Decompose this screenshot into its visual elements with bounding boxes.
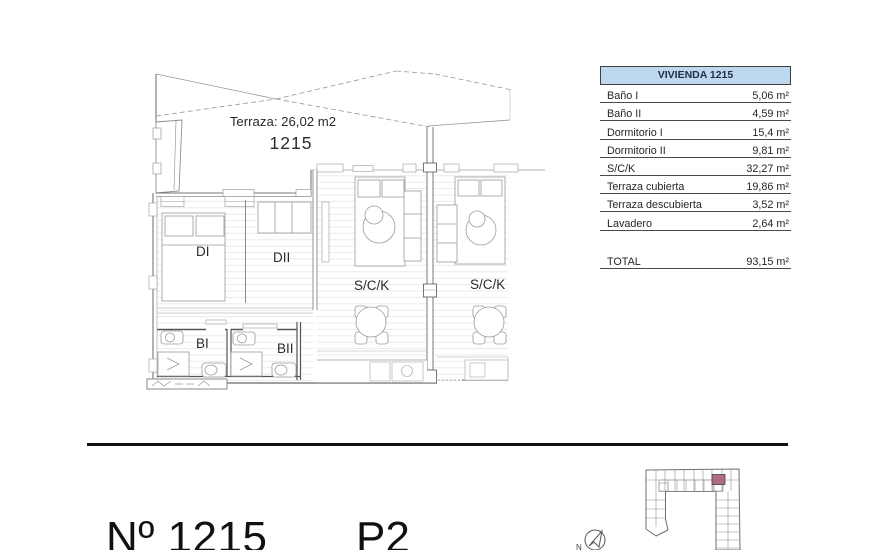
- floor-label: P2: [356, 513, 410, 550]
- room-label-bano2: BII: [277, 341, 294, 356]
- unit-title: Nº 1215: [106, 513, 267, 550]
- table-row: Dormitorio I 15,4 m²: [600, 121, 791, 139]
- table-total-row: TOTAL 93,15 m²: [600, 251, 791, 269]
- room-label-dormitorio1: DI: [196, 244, 210, 259]
- row-value: 9,81 m²: [752, 145, 791, 157]
- row-value: 5,06 m²: [752, 90, 791, 102]
- row-label: Dormitorio II: [600, 145, 666, 157]
- row-label: Terraza descubierta: [600, 199, 702, 211]
- north-compass-icon: N: [570, 522, 612, 550]
- total-value: 93,15 m²: [746, 256, 791, 268]
- table-row: Terraza cubierta 19,86 m²: [600, 176, 791, 194]
- row-label: Dormitorio I: [600, 127, 663, 139]
- unit-number-label: 1215: [270, 133, 313, 153]
- brochure-page: Terraza: 26,02 m2 1215 DI DII S/C/K S/C/…: [0, 0, 870, 550]
- row-value: 2,64 m²: [752, 218, 791, 230]
- total-label: TOTAL: [600, 256, 641, 268]
- floor-plan-drawing: Terraza: 26,02 m2 1215 DI DII S/C/K S/C/…: [140, 55, 570, 430]
- row-label: Lavadero: [600, 218, 652, 230]
- row-label: S/C/K: [600, 163, 635, 175]
- table-row: Dormitorio II 9,81 m²: [600, 140, 791, 158]
- row-value: 4,59 m²: [752, 108, 791, 120]
- lavadero-strip: [147, 379, 227, 389]
- terrace-label: Terraza: 26,02 m2: [230, 114, 336, 129]
- row-value: 15,4 m²: [752, 127, 791, 139]
- key-plan-highlight: [712, 475, 725, 485]
- room-label-dormitorio2: DII: [273, 250, 290, 265]
- row-value: 19,86 m²: [746, 181, 791, 193]
- table-row: Baño II 4,59 m²: [600, 103, 791, 121]
- table-row: Baño I 5,06 m²: [600, 85, 791, 103]
- row-label: Terraza cubierta: [600, 181, 684, 193]
- area-table: VIVIENDA 1215 Baño I 5,06 m² Baño II 4,5…: [600, 66, 791, 269]
- table-row: Lavadero 2,64 m²: [600, 212, 791, 230]
- row-value: 32,27 m²: [746, 163, 791, 175]
- room-label-bano1: BI: [196, 336, 209, 351]
- row-label: Baño II: [600, 108, 641, 120]
- room-label-salon: S/C/K: [354, 278, 389, 293]
- area-table-header: VIVIENDA 1215: [600, 66, 791, 85]
- table-row: Terraza descubierta 3,52 m²: [600, 194, 791, 212]
- building-key-plan: [633, 463, 747, 550]
- north-label: N: [576, 543, 582, 550]
- room-label-salon-neighbor: S/C/K: [470, 277, 505, 292]
- table-row: S/C/K 32,27 m²: [600, 158, 791, 176]
- row-label: Baño I: [600, 90, 638, 102]
- divider-line: [87, 443, 788, 446]
- row-value: 3,52 m²: [752, 199, 791, 211]
